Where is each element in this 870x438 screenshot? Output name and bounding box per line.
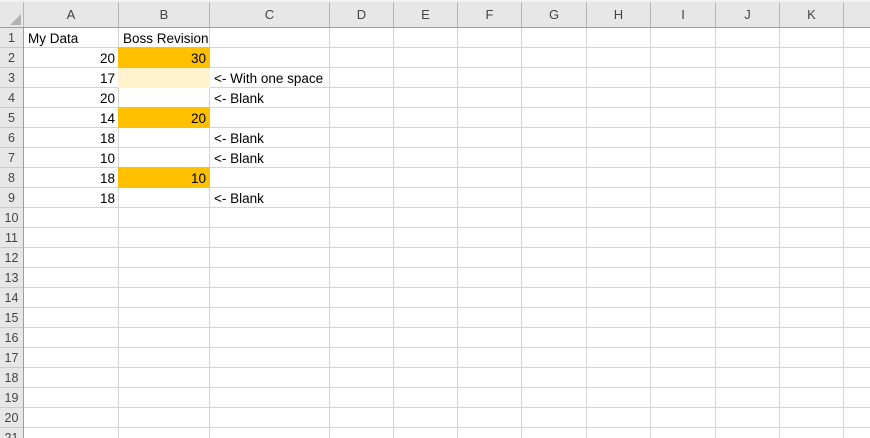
row-header-19[interactable]: 19 <box>0 388 23 408</box>
gridline-I-J <box>715 28 716 438</box>
gridline-K-L <box>843 28 844 438</box>
row-header-3[interactable]: 3 <box>0 68 23 88</box>
column-header-bar: A B C D E F G H I J K <box>0 2 870 28</box>
column-header-D[interactable]: D <box>330 2 394 27</box>
cell-A2[interactable]: 20 <box>24 48 119 68</box>
row-header-16[interactable]: 16 <box>0 328 23 348</box>
column-header-F[interactable]: F <box>458 2 522 27</box>
gridline-J-K <box>779 28 780 438</box>
row-header-10[interactable]: 10 <box>0 208 23 228</box>
row-header-11[interactable]: 11 <box>0 228 23 248</box>
cell-A7[interactable]: 10 <box>24 148 119 168</box>
row-header-17[interactable]: 17 <box>0 348 23 368</box>
row-header-15[interactable]: 15 <box>0 308 23 328</box>
row-header-8[interactable]: 8 <box>0 168 23 188</box>
column-header-A[interactable]: A <box>24 2 119 27</box>
gridline-E-F <box>457 28 458 438</box>
row-header-9[interactable]: 9 <box>0 188 23 208</box>
row-header-12[interactable]: 12 <box>0 248 23 268</box>
column-header-C[interactable]: C <box>210 2 330 27</box>
cell-A6[interactable]: 18 <box>24 128 119 148</box>
cell-C4[interactable]: <- Blank <box>210 88 330 108</box>
row-header-gutter: 1 2 3 4 5 6 7 8 9 10 11 12 13 14 15 16 1… <box>0 28 24 438</box>
cell-B8[interactable]: 10 <box>118 167 210 188</box>
row-header-6[interactable]: 6 <box>0 128 23 148</box>
column-header-I[interactable]: I <box>651 2 716 27</box>
row-header-7[interactable]: 7 <box>0 148 23 168</box>
column-header-G[interactable]: G <box>522 2 587 27</box>
row-header-2[interactable]: 2 <box>0 48 23 68</box>
cell-A4[interactable]: 20 <box>24 88 119 108</box>
cell-B2[interactable]: 30 <box>118 47 210 68</box>
cell-B1[interactable]: Boss Revision <box>119 28 210 48</box>
cell-A8[interactable]: 18 <box>24 168 119 188</box>
cell-B3[interactable] <box>118 68 210 88</box>
column-header-K[interactable]: K <box>780 2 844 27</box>
gridline-D-E <box>393 28 394 438</box>
column-header-B[interactable]: B <box>119 2 210 27</box>
row-header-4[interactable]: 4 <box>0 88 23 108</box>
select-all-corner[interactable] <box>0 2 24 27</box>
cell-A5[interactable]: 14 <box>24 108 119 128</box>
cell-C6[interactable]: <- Blank <box>210 128 330 148</box>
row-header-1[interactable]: 1 <box>0 28 23 48</box>
column-header-partial[interactable] <box>844 2 870 27</box>
gridline-H-I <box>650 28 651 438</box>
row-header-14[interactable]: 14 <box>0 288 23 308</box>
cell-C9[interactable]: <- Blank <box>210 188 330 208</box>
row-header-18[interactable]: 18 <box>0 368 23 388</box>
column-header-E[interactable]: E <box>394 2 458 27</box>
row-header-21[interactable]: 21 <box>0 428 23 438</box>
cell-C7[interactable]: <- Blank <box>210 148 330 168</box>
cell-C3[interactable]: <- With one space <box>210 68 330 88</box>
cell-B5[interactable]: 20 <box>118 107 210 128</box>
cell-A3[interactable]: 17 <box>24 68 119 88</box>
column-header-H[interactable]: H <box>587 2 651 27</box>
row-header-20[interactable]: 20 <box>0 408 23 428</box>
gridline-G-H <box>586 28 587 438</box>
column-header-J[interactable]: J <box>716 2 780 27</box>
row-header-5[interactable]: 5 <box>0 108 23 128</box>
row-header-13[interactable]: 13 <box>0 268 23 288</box>
spreadsheet: A B C D E F G H I J K 1 2 3 4 5 6 7 8 9 … <box>0 0 870 438</box>
grid-body[interactable] <box>24 28 870 438</box>
cell-A9[interactable]: 18 <box>24 188 119 208</box>
select-all-triangle-icon <box>10 14 21 25</box>
cell-A1[interactable]: My Data <box>24 28 119 48</box>
gridline-F-G <box>521 28 522 438</box>
